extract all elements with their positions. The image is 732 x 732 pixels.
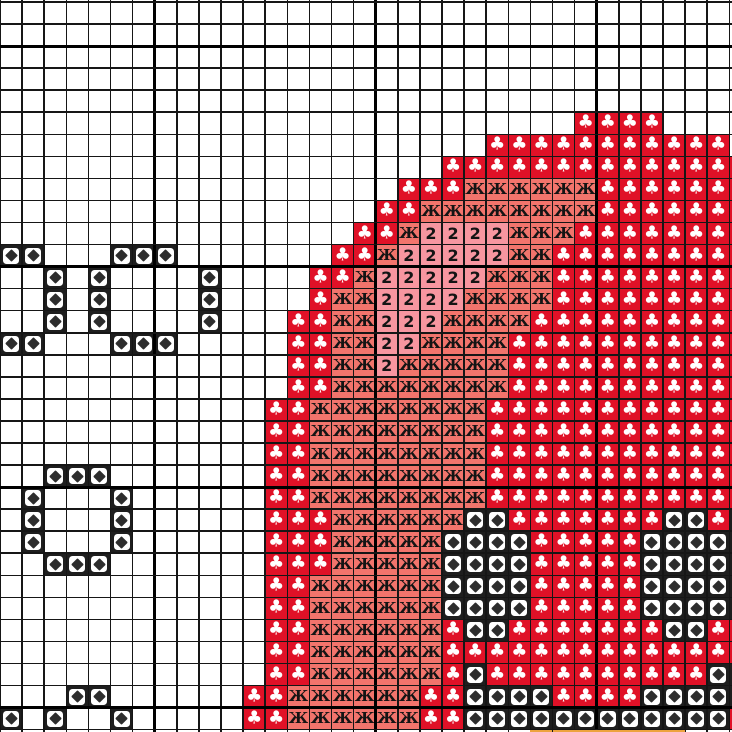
- zhe-cell: Ж: [398, 377, 420, 399]
- clover-icon: ♣: [600, 687, 616, 705]
- zhe-icon: Ж: [355, 557, 375, 572]
- zhe-icon: Ж: [333, 336, 353, 351]
- grid-minor-vline: [640, 0, 642, 732]
- two-icon: 2: [425, 226, 436, 242]
- zhe-cell: Ж: [398, 597, 420, 619]
- zhe-icon: Ж: [333, 292, 353, 307]
- diamond-inset: [511, 534, 527, 550]
- diamond-inset: [710, 711, 726, 727]
- diamond-cell: [44, 708, 66, 730]
- clover-cell: ♣: [685, 333, 707, 355]
- zhe-cell: Ж: [420, 664, 442, 686]
- clover-cell: ♣: [486, 399, 508, 421]
- clover-icon: ♣: [533, 489, 549, 507]
- grid-minor-hline: [0, 464, 732, 466]
- clover-cell: ♣: [265, 399, 287, 421]
- two-icon: 2: [425, 270, 436, 286]
- diamond-inset: [25, 248, 41, 264]
- zhe-icon: Ж: [443, 469, 463, 484]
- diamond-inset: [47, 314, 63, 330]
- diamond-cell: [707, 531, 729, 553]
- clover-icon: ♣: [533, 577, 549, 595]
- clover-icon: ♣: [622, 400, 638, 418]
- zhe-icon: Ж: [355, 402, 375, 417]
- diamond-icon: [71, 470, 84, 483]
- clover-cell: ♣: [707, 443, 729, 465]
- zhe-icon: Ж: [487, 182, 507, 197]
- clover-cell: ♣: [575, 619, 597, 641]
- grid-minor-hline: [0, 134, 732, 136]
- diamond-cell: [199, 267, 221, 289]
- clover-icon: ♣: [445, 643, 461, 661]
- grid-minor-vline: [485, 0, 487, 732]
- clover-icon: ♣: [644, 643, 660, 661]
- clover-cell: ♣: [597, 112, 619, 134]
- clover-icon: ♣: [644, 202, 660, 220]
- zhe-cell: Ж: [442, 355, 464, 377]
- zhe-cell: Ж: [575, 178, 597, 200]
- zhe-cell: Ж: [398, 553, 420, 575]
- zhe-icon: Ж: [443, 447, 463, 462]
- clover-icon: ♣: [268, 643, 284, 661]
- two-icon: 2: [425, 248, 436, 264]
- diamond-icon: [513, 712, 526, 725]
- diamond-icon: [646, 558, 659, 571]
- clover-icon: ♣: [666, 202, 682, 220]
- zhe-icon: Ж: [576, 182, 596, 197]
- zhe-icon: Ж: [311, 667, 331, 682]
- clover-cell: ♣: [530, 487, 552, 509]
- clover-cell: ♣: [597, 553, 619, 575]
- clover-cell: ♣: [707, 178, 729, 200]
- zhe-cell: Ж: [508, 267, 530, 289]
- zhe-cell: Ж: [398, 223, 420, 245]
- clover-icon: ♣: [710, 334, 726, 352]
- diamond-cell: [44, 311, 66, 333]
- zhe-icon: Ж: [311, 469, 331, 484]
- clover-icon: ♣: [600, 422, 616, 440]
- diamond-cell: [88, 311, 110, 333]
- zhe-icon: Ж: [399, 424, 419, 439]
- zhe-icon: Ж: [377, 601, 397, 616]
- diamond-cell: [597, 708, 619, 730]
- two-icon: 2: [403, 248, 414, 264]
- diamond-icon: [49, 470, 62, 483]
- clover-cell: ♣: [685, 641, 707, 663]
- clover-icon: ♣: [644, 158, 660, 176]
- clover-cell: ♣: [420, 178, 442, 200]
- diamond-cell: [641, 531, 663, 553]
- diamond-cell: [707, 664, 729, 686]
- zhe-cell: Ж: [420, 575, 442, 597]
- zhe-icon: Ж: [377, 711, 397, 726]
- clover-icon: ♣: [666, 356, 682, 374]
- clover-icon: ♣: [622, 136, 638, 154]
- diamond-icon: [137, 249, 150, 262]
- diamond-inset: [47, 292, 63, 308]
- zhe-cell: Ж: [398, 531, 420, 553]
- zhe-icon: Ж: [377, 535, 397, 550]
- grid-minor-hline: [0, 420, 732, 422]
- zhe-cell: Ж: [442, 377, 464, 399]
- zhe-icon: Ж: [443, 424, 463, 439]
- clover-icon: ♣: [578, 643, 594, 661]
- clover-icon: ♣: [511, 643, 527, 661]
- clover-cell: ♣: [597, 421, 619, 443]
- diamond-inset: [489, 600, 505, 616]
- diamond-icon: [491, 558, 504, 571]
- zhe-icon: Ж: [421, 402, 441, 417]
- clover-cell: ♣: [508, 399, 530, 421]
- clover-icon: ♣: [533, 136, 549, 154]
- clover-cell: ♣: [398, 178, 420, 200]
- clover-cell: ♣: [553, 311, 575, 333]
- clover-cell: ♣: [530, 399, 552, 421]
- clover-cell: ♣: [575, 377, 597, 399]
- clover-icon: ♣: [578, 290, 594, 308]
- two-icon: 2: [403, 336, 414, 352]
- zhe-cell: Ж: [420, 597, 442, 619]
- zhe-cell: Ж: [376, 575, 398, 597]
- diamond-cell: [111, 487, 133, 509]
- zhe-cell: Ж: [553, 178, 575, 200]
- diamond-cell: [44, 553, 66, 575]
- diamond-cell: [663, 531, 685, 553]
- clover-icon: ♣: [268, 511, 284, 529]
- clover-icon: ♣: [622, 158, 638, 176]
- clover-cell: ♣: [575, 443, 597, 465]
- diamond-inset: [511, 556, 527, 572]
- zhe-cell: Ж: [354, 575, 376, 597]
- zhe-icon: Ж: [510, 314, 530, 329]
- grid-minor-vline: [309, 0, 311, 732]
- zhe-cell: Ж: [398, 421, 420, 443]
- diamond-cell: [663, 553, 685, 575]
- zhe-icon: Ж: [532, 182, 552, 197]
- diamond-inset: [114, 248, 130, 264]
- clover-icon: ♣: [246, 687, 262, 705]
- two-cell: 2: [376, 333, 398, 355]
- clover-icon: ♣: [334, 268, 350, 286]
- zhe-cell: Ж: [332, 355, 354, 377]
- zhe-cell: Ж: [309, 664, 331, 686]
- zhe-icon: Ж: [399, 579, 419, 594]
- zhe-icon: Ж: [333, 469, 353, 484]
- clover-icon: ♣: [511, 378, 527, 396]
- diamond-cell: [530, 708, 552, 730]
- diamond-inset: [91, 468, 107, 484]
- two-cell: 2: [376, 355, 398, 377]
- zhe-cell: Ж: [309, 575, 331, 597]
- diamond-cell: [0, 245, 22, 267]
- diamond-inset: [644, 600, 660, 616]
- clover-cell: ♣: [332, 245, 354, 267]
- clover-cell: ♣: [597, 443, 619, 465]
- zhe-icon: Ж: [333, 447, 353, 462]
- clover-icon: ♣: [622, 665, 638, 683]
- diamond-inset: [467, 512, 483, 528]
- diamond-icon: [93, 690, 106, 703]
- clover-cell: ♣: [641, 156, 663, 178]
- clover-cell: ♣: [553, 641, 575, 663]
- zhe-cell: Ж: [420, 465, 442, 487]
- clover-cell: ♣: [508, 619, 530, 641]
- clover-icon: ♣: [467, 158, 483, 176]
- diamond-icon: [690, 602, 703, 615]
- zhe-icon: Ж: [532, 292, 552, 307]
- zhe-cell: Ж: [420, 619, 442, 641]
- clover-cell: ♣: [619, 178, 641, 200]
- grid-minor-vline: [264, 0, 266, 732]
- zhe-cell: Ж: [464, 377, 486, 399]
- zhe-icon: Ж: [355, 491, 375, 506]
- zhe-icon: Ж: [355, 447, 375, 462]
- diamond-inset: [47, 270, 63, 286]
- zhe-cell: Ж: [530, 267, 552, 289]
- clover-cell: ♣: [597, 333, 619, 355]
- grid-minor-vline: [508, 0, 510, 732]
- diamond-inset: [666, 711, 682, 727]
- zhe-cell: Ж: [398, 509, 420, 531]
- zhe-icon: Ж: [311, 491, 331, 506]
- clover-icon: ♣: [268, 467, 284, 485]
- zhe-icon: Ж: [510, 248, 530, 263]
- diamond-icon: [668, 602, 681, 615]
- clover-cell: ♣: [575, 399, 597, 421]
- two-icon: 2: [381, 314, 392, 330]
- zhe-icon: Ж: [421, 204, 441, 219]
- two-icon: 2: [492, 248, 503, 264]
- clover-icon: ♣: [290, 422, 306, 440]
- clover-icon: ♣: [622, 489, 638, 507]
- diamond-cell: [685, 619, 707, 641]
- diamond-icon: [49, 315, 62, 328]
- clover-icon: ♣: [600, 114, 616, 132]
- clover-icon: ♣: [600, 334, 616, 352]
- clover-icon: ♣: [533, 422, 549, 440]
- zhe-cell: Ж: [398, 664, 420, 686]
- diamond-cell: [111, 245, 133, 267]
- two-icon: 2: [403, 292, 414, 308]
- two-cell: 2: [486, 223, 508, 245]
- zhe-icon: Ж: [355, 314, 375, 329]
- clover-cell: ♣: [530, 531, 552, 553]
- diamond-inset: [467, 667, 483, 683]
- clover-icon: ♣: [290, 356, 306, 374]
- clover-cell: ♣: [309, 311, 331, 333]
- grid-minor-vline: [43, 0, 45, 732]
- clover-icon: ♣: [555, 687, 571, 705]
- clover-icon: ♣: [357, 246, 373, 264]
- zhe-cell: Ж: [354, 708, 376, 730]
- clover-cell: ♣: [420, 708, 442, 730]
- clover-cell: ♣: [597, 134, 619, 156]
- clover-icon: ♣: [622, 202, 638, 220]
- diamond-inset: [158, 248, 174, 264]
- diamond-cell: [685, 686, 707, 708]
- zhe-cell: Ж: [376, 443, 398, 465]
- zhe-cell: Ж: [376, 487, 398, 509]
- zhe-cell: Ж: [420, 487, 442, 509]
- zhe-cell: Ж: [309, 421, 331, 443]
- diamond-icon: [690, 624, 703, 637]
- zhe-icon: Ж: [532, 226, 552, 241]
- clover-icon: ♣: [644, 378, 660, 396]
- clover-cell: ♣: [287, 421, 309, 443]
- clover-cell: ♣: [575, 421, 597, 443]
- diamond-cell: [486, 686, 508, 708]
- clover-icon: ♣: [578, 599, 594, 617]
- diamond-cell: [464, 664, 486, 686]
- zhe-icon: Ж: [421, 645, 441, 660]
- clover-cell: ♣: [597, 245, 619, 267]
- clover-icon: ♣: [511, 489, 527, 507]
- zhe-icon: Ж: [421, 557, 441, 572]
- diamond-icon: [204, 271, 217, 284]
- zhe-cell: Ж: [332, 465, 354, 487]
- diamond-icon: [27, 536, 40, 549]
- two-cell: 2: [398, 289, 420, 311]
- clover-icon: ♣: [445, 709, 461, 727]
- diamond-inset: [644, 578, 660, 594]
- clover-icon: ♣: [710, 158, 726, 176]
- clover-icon: ♣: [688, 445, 704, 463]
- diamond-icon: [71, 690, 84, 703]
- clover-icon: ♣: [644, 445, 660, 463]
- diamond-cell: [641, 575, 663, 597]
- diamond-icon: [447, 602, 460, 615]
- grid-minor-vline: [242, 0, 244, 732]
- grid-minor-hline: [0, 354, 732, 356]
- clover-cell: ♣: [309, 355, 331, 377]
- clover-cell: ♣: [530, 619, 552, 641]
- clover-cell: ♣: [287, 377, 309, 399]
- clover-cell: ♣: [619, 267, 641, 289]
- two-cell: 2: [486, 245, 508, 267]
- zhe-icon: Ж: [443, 204, 463, 219]
- clover-icon: ♣: [423, 687, 439, 705]
- zhe-icon: Ж: [355, 336, 375, 351]
- clover-icon: ♣: [644, 489, 660, 507]
- clover-cell: ♣: [685, 134, 707, 156]
- zhe-cell: Ж: [486, 311, 508, 333]
- clover-cell: ♣: [287, 641, 309, 663]
- two-icon: 2: [381, 358, 392, 374]
- clover-cell: ♣: [641, 443, 663, 465]
- clover-icon: ♣: [622, 268, 638, 286]
- grid-minor-hline: [0, 288, 732, 290]
- zhe-cell: Ж: [553, 200, 575, 222]
- clover-icon: ♣: [268, 709, 284, 727]
- diamond-cell: [44, 465, 66, 487]
- diamond-inset: [622, 711, 638, 727]
- clover-icon: ♣: [555, 422, 571, 440]
- clover-cell: ♣: [575, 355, 597, 377]
- clover-icon: ♣: [445, 687, 461, 705]
- clover-icon: ♣: [290, 400, 306, 418]
- clover-cell: ♣: [575, 597, 597, 619]
- clover-cell: ♣: [553, 399, 575, 421]
- zhe-icon: Ж: [399, 711, 419, 726]
- zhe-cell: Ж: [508, 311, 530, 333]
- clover-icon: ♣: [600, 400, 616, 418]
- clover-cell: ♣: [508, 421, 530, 443]
- diamond-cell: [88, 267, 110, 289]
- diamond-inset: [666, 534, 682, 550]
- clover-icon: ♣: [555, 555, 571, 573]
- zhe-cell: Ж: [376, 531, 398, 553]
- diamond-cell: [88, 553, 110, 575]
- grid-minor-hline: [0, 200, 732, 202]
- clover-cell: ♣: [597, 531, 619, 553]
- two-cell: 2: [420, 223, 442, 245]
- clover-cell: ♣: [663, 377, 685, 399]
- two-icon: 2: [470, 226, 481, 242]
- diamond-icon: [601, 712, 614, 725]
- clover-cell: ♣: [707, 641, 729, 663]
- clover-cell: ♣: [508, 641, 530, 663]
- diamond-inset: [644, 689, 660, 705]
- diamond-icon: [469, 580, 482, 593]
- clover-icon: ♣: [489, 489, 505, 507]
- zhe-cell: Ж: [508, 245, 530, 267]
- clover-icon: ♣: [246, 709, 262, 727]
- zhe-cell: Ж: [442, 509, 464, 531]
- zhe-icon: Ж: [443, 336, 463, 351]
- clover-cell: ♣: [641, 134, 663, 156]
- clover-cell: ♣: [530, 355, 552, 377]
- clover-cell: ♣: [685, 200, 707, 222]
- clover-cell: ♣: [685, 178, 707, 200]
- zhe-cell: Ж: [486, 377, 508, 399]
- clover-icon: ♣: [644, 136, 660, 154]
- zhe-cell: Ж: [398, 708, 420, 730]
- clover-icon: ♣: [533, 533, 549, 551]
- diamond-cell: [111, 509, 133, 531]
- diamond-cell: [685, 575, 707, 597]
- clover-cell: ♣: [530, 421, 552, 443]
- clover-icon: ♣: [666, 246, 682, 264]
- zhe-cell: Ж: [420, 641, 442, 663]
- clover-icon: ♣: [688, 312, 704, 330]
- clover-icon: ♣: [357, 224, 373, 242]
- zhe-icon: Ж: [355, 535, 375, 550]
- clover-icon: ♣: [533, 400, 549, 418]
- diamond-icon: [491, 624, 504, 637]
- diamond-icon: [668, 558, 681, 571]
- clover-cell: ♣: [597, 267, 619, 289]
- clover-cell: ♣: [707, 333, 729, 355]
- clover-cell: ♣: [663, 200, 685, 222]
- diamond-icon: [491, 536, 504, 549]
- diamond-inset: [710, 600, 726, 616]
- clover-icon: ♣: [688, 224, 704, 242]
- diamond-cell: [685, 597, 707, 619]
- grid-minor-hline: [0, 23, 732, 25]
- zhe-cell: Ж: [332, 597, 354, 619]
- diamond-cell: [508, 597, 530, 619]
- zhe-icon: Ж: [333, 491, 353, 506]
- clover-cell: ♣: [376, 200, 398, 222]
- diamond-icon: [513, 602, 526, 615]
- clover-cell: ♣: [508, 664, 530, 686]
- zhe-icon: Ж: [532, 204, 552, 219]
- clover-icon: ♣: [533, 334, 549, 352]
- clover-cell: ♣: [663, 289, 685, 311]
- clover-cell: ♣: [641, 421, 663, 443]
- clover-icon: ♣: [622, 312, 638, 330]
- zhe-cell: Ж: [376, 708, 398, 730]
